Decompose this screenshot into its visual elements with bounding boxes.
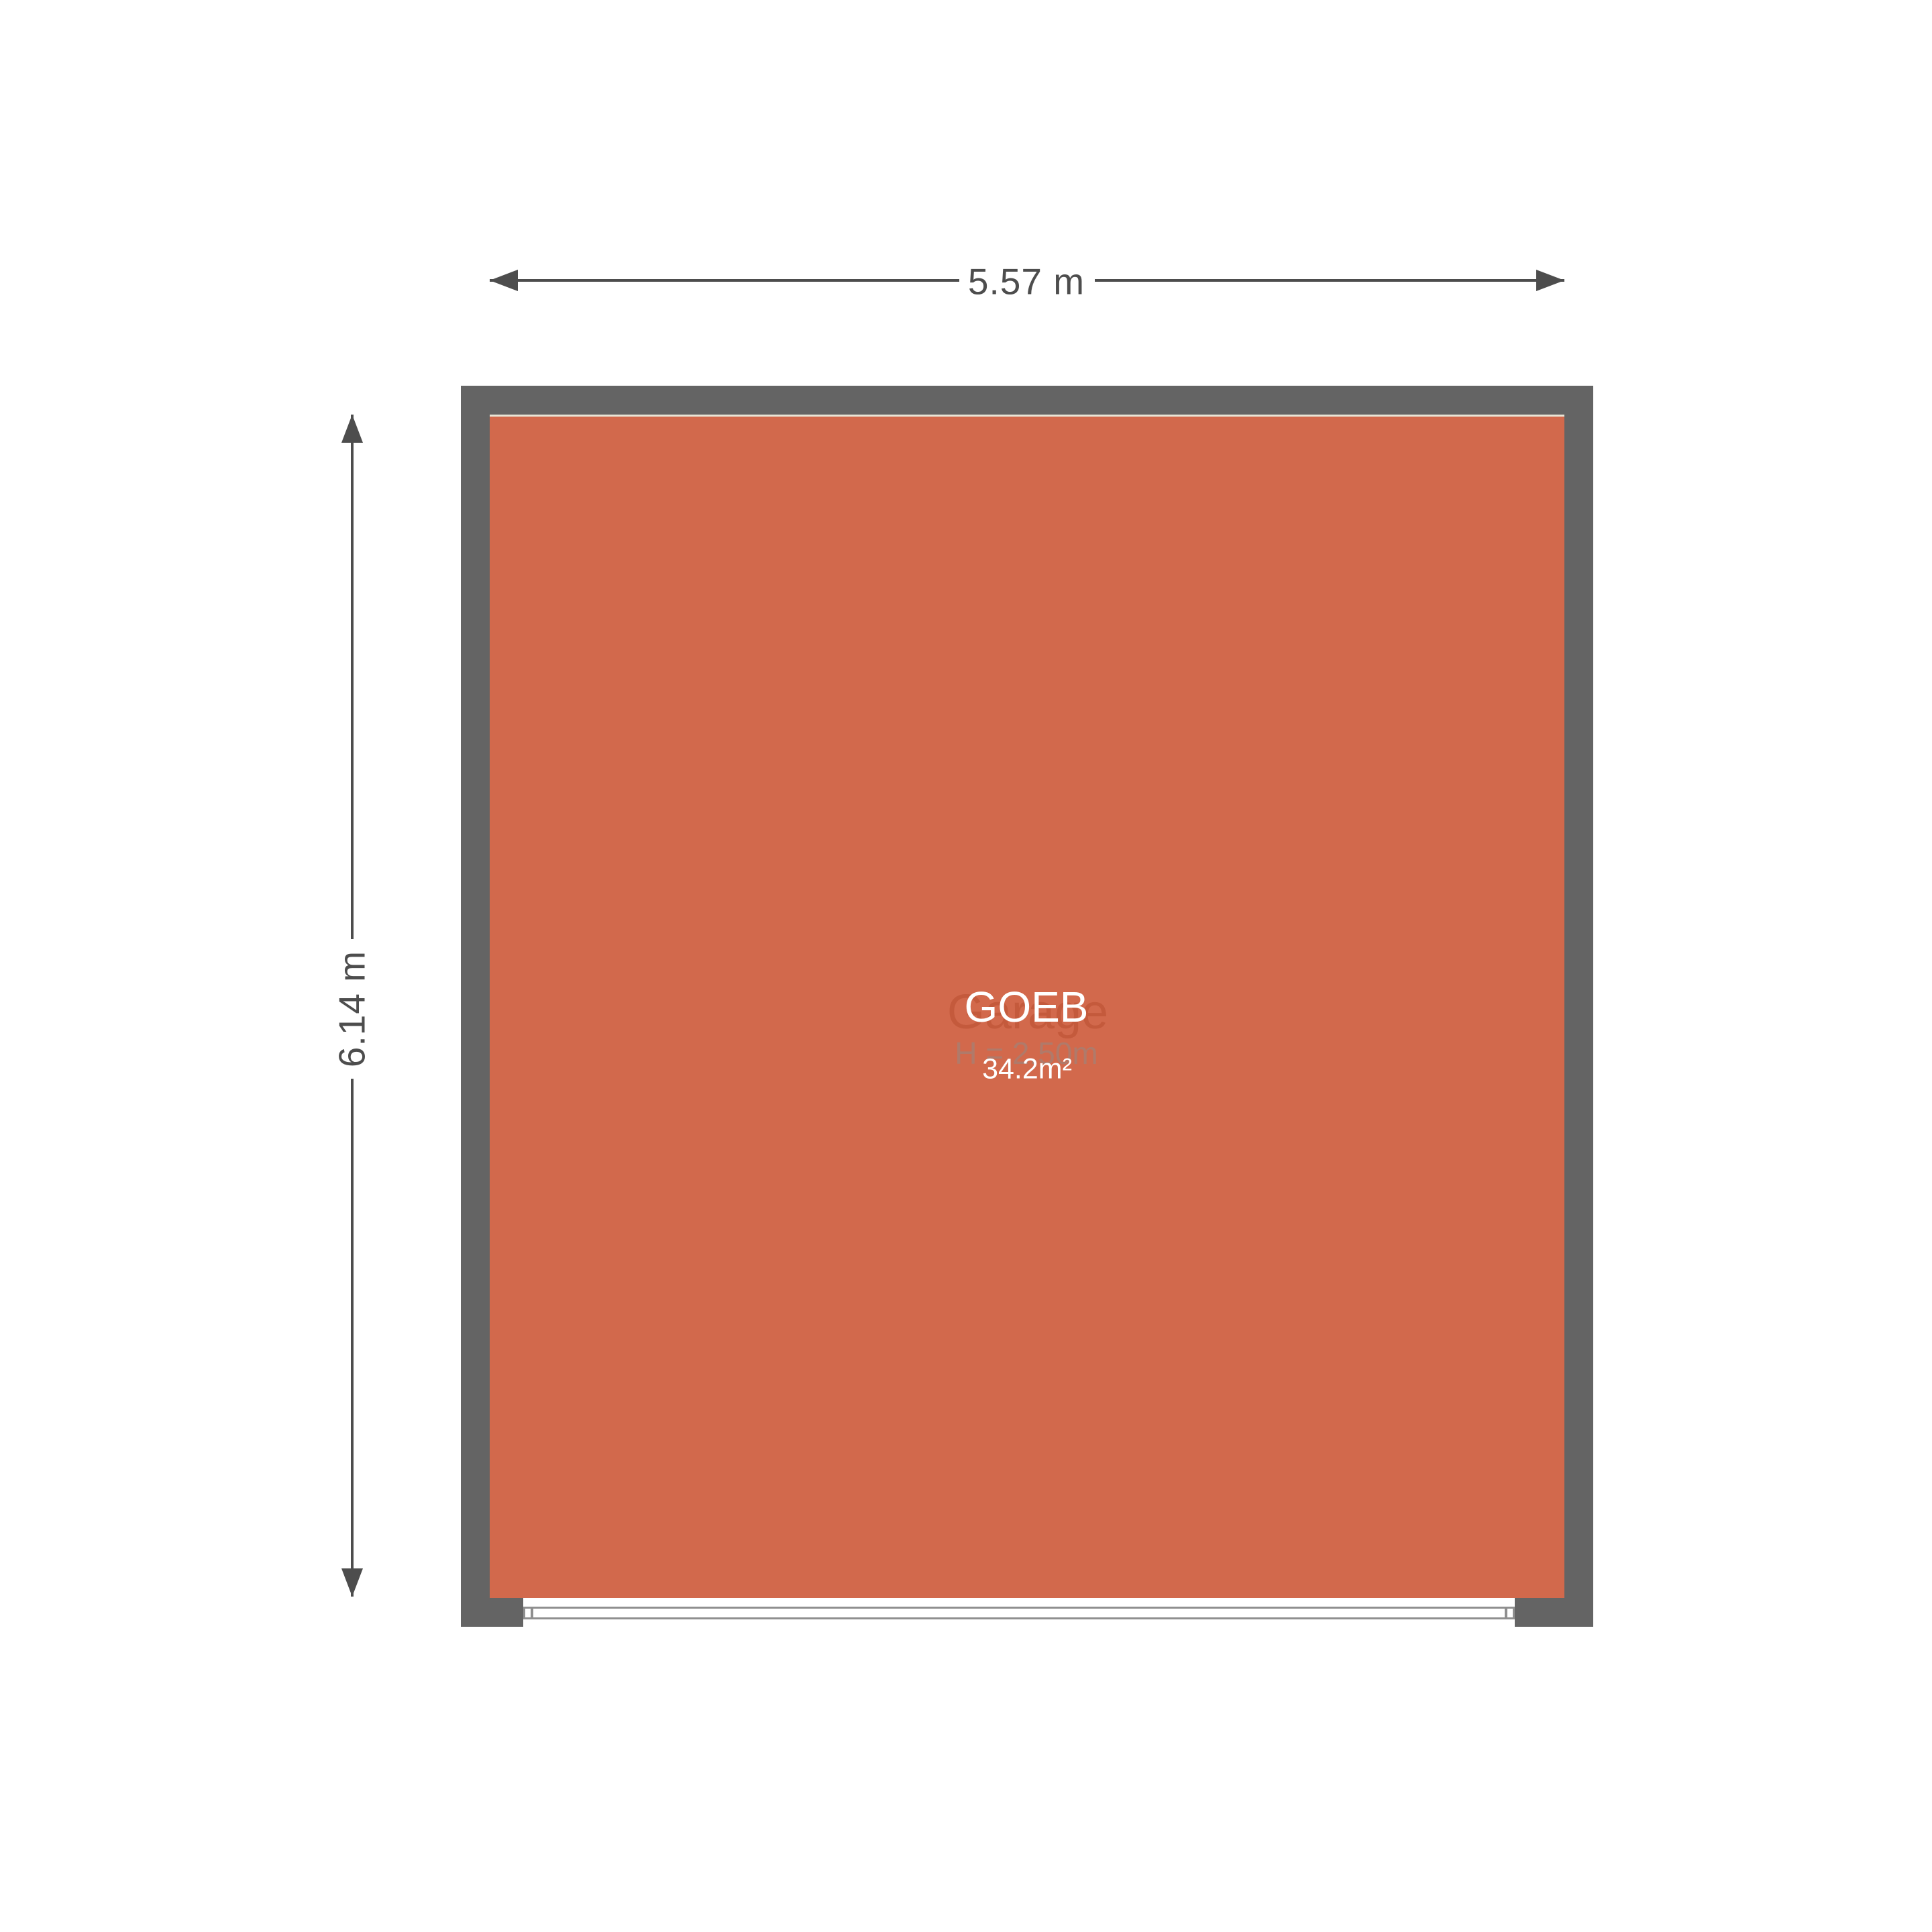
wall-left xyxy=(461,386,490,1627)
wall-right xyxy=(1564,386,1593,1627)
wall-stub-bottom-left xyxy=(461,1598,523,1627)
room-area-label: 34.2m² xyxy=(982,1055,1072,1084)
wall-stub-bottom-right xyxy=(1515,1598,1593,1627)
wall-top xyxy=(461,386,1593,415)
garage-door-right-jamb xyxy=(1505,1607,1507,1619)
arrow-left-icon xyxy=(490,270,518,291)
height-dimension-label: 6.14 m xyxy=(334,951,371,1067)
floorplan-canvas: Garage H = 2.50m GOEB 34.2m² 5.57 m 6.14… xyxy=(0,0,1932,1932)
height-dimension-line-top xyxy=(351,415,354,939)
room-name-label: GOEB xyxy=(965,985,1089,1028)
garage-door-left-jamb xyxy=(531,1607,533,1619)
garage-door[interactable] xyxy=(523,1607,1515,1619)
arrow-down-icon xyxy=(341,1568,363,1597)
height-dimension-line-bottom xyxy=(351,1079,354,1597)
floor-top-edge-line xyxy=(490,415,1564,417)
width-dimension-label: 5.57 m xyxy=(968,264,1085,301)
arrow-right-icon xyxy=(1536,270,1564,291)
arrow-up-icon xyxy=(341,415,363,443)
width-dimension-line-left xyxy=(490,279,959,282)
width-dimension-line-right xyxy=(1095,279,1564,282)
